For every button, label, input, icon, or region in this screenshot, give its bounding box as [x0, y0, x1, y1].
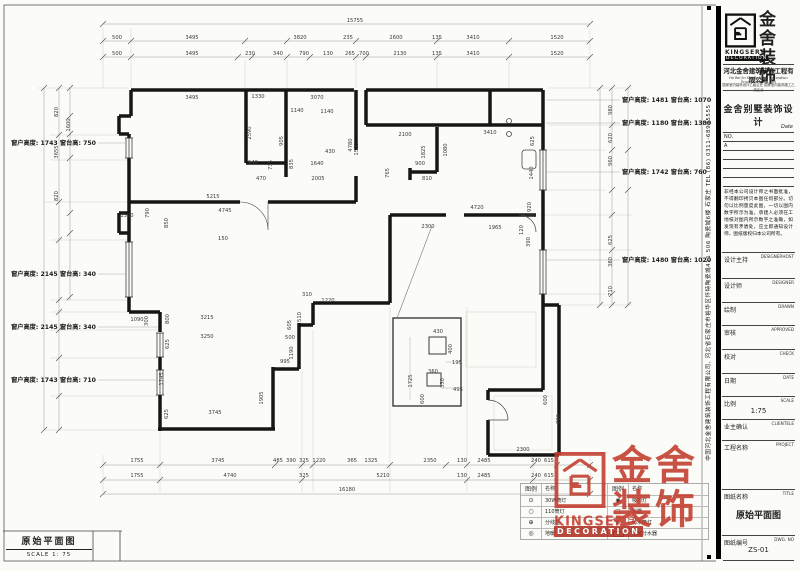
- dimension-label: 2300: [421, 224, 434, 230]
- dimension-label: 3745: [208, 410, 221, 416]
- dimension-label: 800: [165, 314, 171, 324]
- dimension-label: 3495: [185, 51, 198, 57]
- dimension-label: 615: [544, 458, 554, 464]
- dimension-label: 5215: [206, 194, 219, 200]
- dimension-label: 400: [448, 344, 454, 354]
- dimension-label: 810: [422, 176, 432, 182]
- dimension-label: 1905: [259, 391, 265, 404]
- dimension-label: 135: [432, 51, 442, 57]
- legend-table: 图例名称图例名称⊙30W筒灯◉吸顶灯○110筒灯□浴霸⊕分线盒⊗防水筒灯◎地暖地…: [520, 483, 709, 540]
- dimension-label: 790: [299, 51, 309, 57]
- dimension-label: 2300: [516, 447, 529, 453]
- dimension-label: 130: [457, 473, 467, 479]
- dimension-label: 2590: [247, 126, 253, 139]
- dimension-label: 4740: [223, 473, 236, 479]
- window-height-annotation: 窗户高度: 2145 窗台高: 340: [11, 270, 97, 278]
- dimension-label: 470: [256, 176, 266, 182]
- dimension-label: 265: [345, 51, 355, 57]
- titleblock-field-clientele: 业主确认CLIENTELE: [722, 419, 795, 440]
- titleblock-field-drawn: 绘制DRAWN: [722, 302, 795, 325]
- dimension-label: 240: [531, 458, 541, 464]
- title-block: 金舍 装饰 KINGSER® DECORATION 河北金舍建筑装饰工程有限公司…: [722, 6, 795, 561]
- dimension-label: 1525: [354, 142, 360, 155]
- titleblock-field-approved: 审核APPROVED: [722, 325, 795, 349]
- kingser-logo-icon: [725, 13, 756, 48]
- dimension-label: 600: [420, 394, 426, 404]
- titleblock-field-title: 图纸名称TITLE原始平面图: [722, 489, 795, 535]
- dimension-label: 2485: [477, 458, 490, 464]
- sheet-border: [3, 5, 716, 561]
- dimension-label: 625: [608, 235, 614, 245]
- dimension-label: 720: [556, 414, 562, 424]
- dimension-label: 2130: [393, 51, 406, 57]
- dimension-label: 310: [302, 292, 312, 298]
- window-height-annotation: 窗户高度: 2145 窗台高: 340: [11, 323, 97, 331]
- dimension-label: 1640: [310, 161, 323, 167]
- dimension-label: 510: [297, 312, 303, 322]
- dimension-label: 605: [287, 320, 293, 330]
- dimension-label: 195: [452, 360, 462, 366]
- dimension-label: 340: [273, 51, 283, 57]
- dimension-label: 2485: [477, 473, 490, 479]
- titleblock-field-designer: 设计师DESIGNER: [722, 278, 795, 302]
- legend-symbol-icon: ◎: [521, 529, 542, 539]
- dimension-label: 735: [268, 160, 274, 170]
- titleblock-field-project: 工程名称PROJECT: [722, 440, 795, 489]
- dimension-label: 1825: [421, 145, 427, 158]
- dimension-label: 960: [608, 156, 614, 166]
- titleblock-field-check: 校对CHECK: [722, 349, 795, 373]
- legend-symbol-icon: ○: [521, 507, 542, 517]
- dimension-label: 5210: [376, 473, 389, 479]
- dimension-label: 4720: [470, 205, 483, 211]
- titleblock-field-scale: 比例SCALE1:75: [722, 396, 795, 419]
- dimension-label: 1745: [159, 372, 165, 385]
- legend-symbol-icon: ◉: [608, 496, 629, 506]
- dimension-label: 615: [544, 473, 554, 479]
- detail-box: [393, 226, 462, 406]
- dimension-label: 16180: [339, 487, 356, 493]
- window-height-annotation: 窗户高度: 1180 窗台高: 1380: [622, 119, 712, 127]
- legend-symbol-icon: ⊗: [608, 518, 629, 528]
- legend-symbol-icon: ⊙: [521, 496, 542, 506]
- dimension-label: 765: [385, 168, 391, 178]
- dimension-label: 1090: [130, 317, 143, 323]
- dimension-label: 390: [286, 458, 296, 464]
- dimension-label: 1140: [320, 109, 333, 115]
- dimension-label: 365: [347, 458, 357, 464]
- dimension-label: 4745: [218, 208, 231, 214]
- dimension-label: 500: [285, 335, 295, 341]
- logo-en2: DECORATION: [725, 56, 768, 61]
- dimension-label: 3250: [200, 334, 213, 340]
- dimension-label: 3820: [293, 35, 306, 41]
- company-address-strip: 中国河北金舍建筑装饰工程有限公司, 河北省石家庄市裕华区怀特陶瓷城411 506…: [704, 10, 715, 555]
- dimension-label: 240: [531, 473, 541, 479]
- dimension-label: 430: [433, 329, 443, 335]
- dimension-label: 500: [112, 51, 122, 57]
- titleblock-divider-bar: [716, 6, 721, 559]
- dimension-label: 3495: [185, 95, 198, 101]
- dimension-label: 325: [299, 458, 309, 464]
- dimension-label: 620: [608, 133, 614, 143]
- legend-row: ○110筒灯□浴霸: [521, 506, 708, 517]
- dimension-label: 625: [164, 409, 170, 419]
- dimension-label: 905: [279, 136, 285, 146]
- dimension-label: 540: [248, 160, 258, 166]
- window-height-annotation: 窗户高度: 1743 窗台高: 750: [11, 139, 97, 147]
- revision-a: A: [724, 143, 727, 149]
- dimension-label: 15755: [347, 18, 364, 24]
- dimension-label: 150: [218, 236, 228, 242]
- sheet-title-box: 原始平面图 SCALE 1: 75: [6, 534, 92, 558]
- floor-plan-svg: 1575550034953820235260013534101520500349…: [0, 0, 716, 567]
- dimension-label: 625: [530, 136, 536, 146]
- dimension-label: 495: [453, 387, 463, 393]
- titleblock-field-dwg-no: 图纸编号DWG. NOZS-01: [722, 535, 795, 571]
- dimension-label: 1725: [408, 374, 414, 387]
- dimension-label: 820: [54, 107, 60, 117]
- dimension-label: 1220: [312, 458, 325, 464]
- dimension-label: 235: [343, 35, 353, 41]
- dimension-label: 820: [54, 191, 60, 201]
- dimension-label: 1325: [364, 458, 377, 464]
- dimension-label: 380: [608, 257, 614, 267]
- dimension-label: 360: [428, 369, 438, 375]
- furniture-outlines: [466, 312, 552, 450]
- dimension-label: 920: [527, 202, 533, 212]
- dimension-label: 2600: [389, 35, 402, 41]
- dimension-label: 600: [543, 395, 549, 405]
- dimension-label: 325: [299, 473, 309, 479]
- window-height-annotation: 窗户高度: 1743 窗台高: 710: [11, 376, 97, 384]
- legend-row: ⊙30W筒灯◉吸顶灯: [521, 495, 708, 506]
- window-height-annotation: 窗户高度: 1742 窗台高: 760: [622, 168, 708, 176]
- dimension-label: 1965: [488, 225, 501, 231]
- dimension-label: 710: [608, 286, 614, 296]
- door-arcs: [240, 202, 536, 420]
- dimension-label: 2100: [398, 132, 411, 138]
- dimension-label: 3410: [483, 130, 496, 136]
- dimension-label: 2350: [423, 458, 436, 464]
- dimension-label: 1600: [66, 118, 72, 131]
- drawing-sheet: { "plan": { "title": "原始平面图", "scale_lab…: [0, 0, 800, 567]
- dimension-label: 300: [144, 316, 150, 326]
- dimension-label: 3070: [310, 95, 323, 101]
- dimension-label: 1140: [290, 108, 303, 114]
- dimension-label: 2005: [311, 176, 324, 182]
- dimension-label: 980: [608, 105, 614, 115]
- legend-row: ⊕分线盒⊗防水筒灯: [521, 517, 708, 528]
- dimension-label: 850: [164, 218, 170, 228]
- date-label: Date: [722, 124, 793, 130]
- dimension-label: 835: [289, 159, 295, 169]
- dimension-label: 1500: [120, 213, 133, 219]
- sheet-scale: SCALE 1: 75: [6, 552, 92, 558]
- dimension-label: 130: [457, 458, 467, 464]
- dimension-label: 1080: [443, 143, 449, 156]
- sheet-title: 原始平面图: [6, 534, 92, 550]
- legend-symbol-icon: [608, 529, 629, 539]
- legend-header: 图例名称图例名称: [521, 484, 708, 495]
- corner-dot-top: [707, 6, 711, 10]
- no-label: NO.: [724, 134, 733, 140]
- dimension-label: 230: [245, 51, 255, 57]
- dimension-label: 430: [325, 149, 335, 155]
- dimension-label: 135: [432, 35, 442, 41]
- dimension-label: 1220: [321, 298, 334, 304]
- dimension-label: 1190: [289, 346, 295, 359]
- dimension-label: 900: [415, 161, 425, 167]
- legend-symbol-icon: □: [608, 507, 629, 517]
- dimension-label: 3745: [211, 458, 224, 464]
- dimension-label: 500: [112, 35, 122, 41]
- dimension-label: 3655: [54, 145, 60, 158]
- dimension-label: 130: [323, 51, 333, 57]
- dimension-label: 330: [440, 378, 446, 388]
- dimension-label: 3410: [466, 51, 479, 57]
- legend-symbol-icon: ⊕: [521, 518, 542, 528]
- window-symbols: [125, 138, 547, 395]
- manifold-symbol-icon: [613, 531, 624, 537]
- dimension-label: 390: [526, 237, 532, 247]
- dimension-label: 3215: [200, 315, 213, 321]
- corner-dot-bottom: [707, 555, 711, 559]
- dimension-label: 790: [145, 208, 151, 218]
- dimension-label: 1755: [130, 473, 143, 479]
- dimension-label: 700: [359, 51, 369, 57]
- titleblock-fields: 设计主持DESIGNERHOST设计师DESIGNER绘制DRAWN审核APPR…: [722, 252, 795, 571]
- dimension-label: 1520: [550, 35, 563, 41]
- dimension-label: 3410: [466, 35, 479, 41]
- titleblock-field-date: 日期DATE: [722, 373, 795, 396]
- disclaimer: 非经本公司设计师之书面批准，不得翻印拷贝本图任何部分。切勿以比例量度此图，一切以…: [724, 189, 793, 238]
- legend-row: ◎地暖地暖分水器: [521, 528, 708, 539]
- dimension-label: 1440: [529, 166, 535, 179]
- dimension-label: 485: [273, 458, 283, 464]
- dimension-label: 1520: [550, 51, 563, 57]
- dimension-label: 625: [165, 339, 171, 349]
- dimension-label: 1755: [130, 458, 143, 464]
- dimension-label: 3495: [185, 35, 198, 41]
- dimension-label: 120: [519, 225, 525, 235]
- titleblock-field-designerhost: 设计主持DESIGNERHOST: [722, 252, 795, 278]
- logo-en: KINGSER®: [725, 49, 767, 56]
- window-height-annotation: 窗户高度: 1481 窗台高: 1070: [622, 96, 712, 104]
- dimension-label: 1330: [251, 94, 264, 100]
- window-height-annotation: 窗户高度: 1480 窗台高: 1020: [622, 256, 712, 264]
